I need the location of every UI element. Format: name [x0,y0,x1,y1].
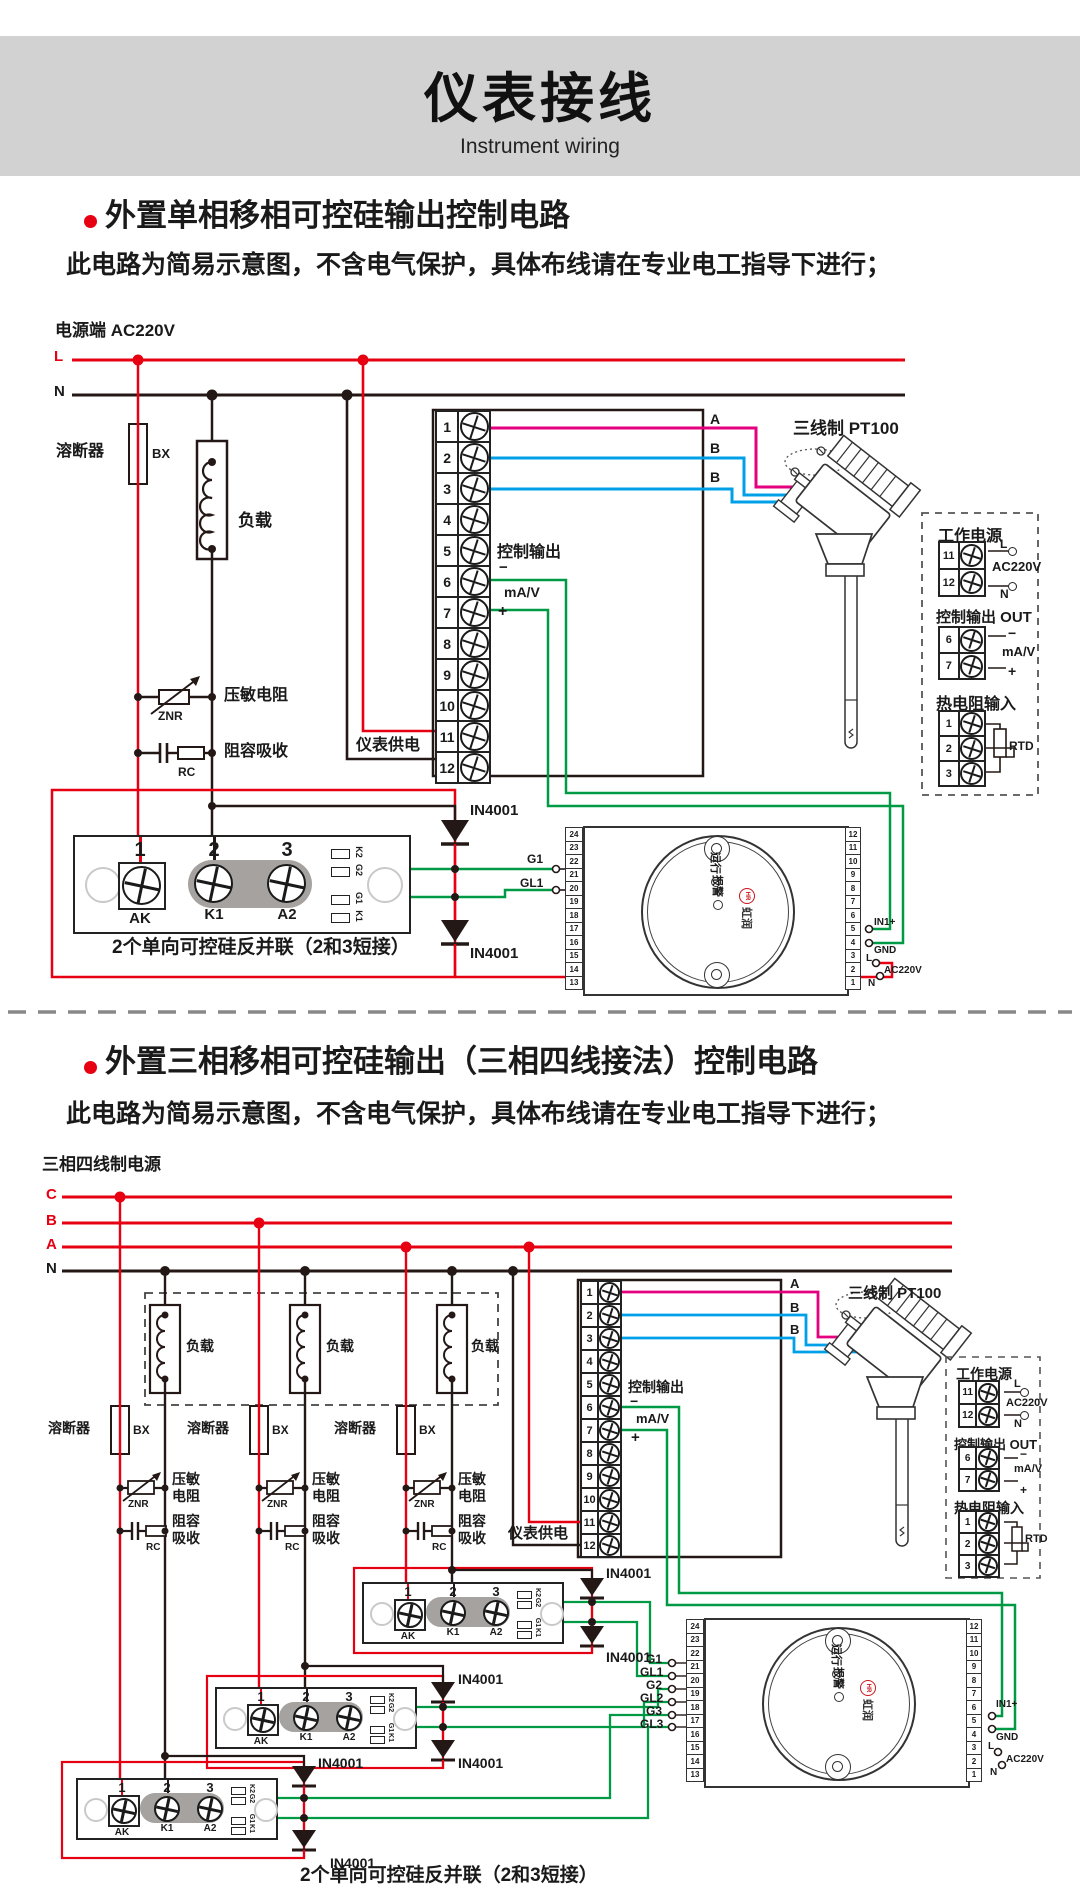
screw-icon [599,1443,620,1464]
diode-label: IN4001 [606,1566,651,1581]
screw-icon [460,412,489,441]
controller-rear: 运行 报警 HR虹润 [583,826,849,996]
screw-icon [460,629,489,658]
varistor-label: 压敏电阻 [224,688,288,705]
panel-unit-label: mA/V [1014,1464,1042,1476]
panel-power-rows: 1112 [958,1382,1000,1428]
snubber-code-label: RC [285,1543,299,1554]
load-label: 负载 [471,1339,499,1354]
screw-icon [599,1305,620,1326]
screw-icon [960,762,983,785]
varistor-label: 电阻 [172,1489,200,1504]
fuse-code-label: BX [272,1424,289,1437]
screw-icon [599,1489,620,1510]
gate-g1-label: G1 [646,1653,662,1666]
screw-icon [194,864,233,903]
wire-b2-label: B [790,1323,799,1337]
screw-icon [267,864,306,903]
panel-voltage-label: AC220V [1006,1398,1048,1410]
section1-title: 外置单相移相可控硅输出控制电路 [105,200,570,233]
instrument-terminal-strip: 123456789101112 [580,1282,622,1555]
mount-hole-icon [370,1602,394,1626]
panel-unit-label: mA/V [1002,645,1035,659]
screw-icon [960,712,983,735]
screw-icon [460,722,489,751]
screw-icon [978,1470,998,1490]
varistor-label: 电阻 [458,1489,486,1504]
scr-module: 1 AK 2 K1 3 A2 K2 G2 G1 K1 [362,1582,564,1644]
mount-hole-icon [367,867,403,903]
gnd-label: GND [874,946,896,957]
snubber-label: 阻容吸收 [224,744,288,761]
gate-gl1-label: GL1 [640,1666,663,1679]
mount-screw-icon [825,1754,851,1780]
load-label: 负载 [326,1339,354,1354]
panel-out-rows: 67 [958,1448,1000,1492]
gate-g2-label: G2 [646,1679,662,1692]
n-label: N [868,979,875,990]
device-left-strip: 242322212019181716151413 [686,1620,704,1782]
screw-icon [599,1535,620,1556]
brand-logo: HR虹润 [860,1680,876,1736]
power-source-label: 三相四线制电源 [42,1156,161,1174]
panel-l-label: L [1000,538,1007,551]
n-label: N [990,1768,997,1779]
voltage-label: AC220V [884,966,922,977]
line-c-label: C [46,1187,57,1203]
in1-label: IN1+ [874,918,895,929]
terminal-dot-icon [1020,1411,1029,1420]
terminal-dot-icon [1008,547,1017,556]
screw-icon [978,1534,998,1554]
varistor-code-label: ZNR [414,1500,435,1511]
screw-icon [599,1397,620,1418]
screw-icon [978,1383,998,1403]
load-label: 负载 [238,512,272,530]
panel-rtd-rows: 123 [958,1512,1000,1574]
screw-icon [960,737,983,760]
wire-a-label: A [790,1277,799,1291]
diode-label: IN4001 [606,1650,651,1665]
scr-module: 1 AK 2 K1 3 A2 K2 G2 G1 K1 [215,1687,417,1749]
screw-icon [960,571,983,594]
screw-icon [960,655,983,678]
panel-minus-label: − [1008,626,1016,641]
scr-caption: 2个单向可控硅反并联（2和3短接） [112,938,410,958]
l-label: L [866,954,872,965]
diode-label: IN4001 [470,803,518,819]
line-n-label: N [54,384,65,400]
fuse-label: 溶断器 [187,1421,229,1436]
gate-g3-label: G3 [646,1705,662,1718]
gate-gl3-label: GL3 [640,1718,663,1731]
gate-pad [331,913,350,923]
screw-icon [460,598,489,627]
scr-caption: 2个单向可控硅反并联（2和3短接） [300,1866,598,1886]
screw-icon [460,753,489,782]
gate-pad [331,849,350,859]
screw-icon [599,1374,620,1395]
diode-label: IN4001 [318,1756,363,1771]
page-subtitle: Instrument wiring [0,135,1080,159]
l-label: L [988,1742,994,1753]
line-n-label: N [46,1261,57,1277]
varistor-label: 压敏 [172,1472,200,1487]
ctrl-unit-label: mA/V [504,585,540,600]
screw-icon [599,1328,620,1349]
ctrl-unit-label: mA/V [636,1412,669,1426]
section1-note: 此电路为简易示意图，不含电气保护，具体布线请在专业电工指导下进行； [66,252,891,279]
bullet-icon [84,215,97,228]
screw-icon [460,567,489,596]
diode-label: IN4001 [458,1672,503,1687]
panel-rtd-label: RTD [1009,740,1034,753]
alarm-indicator: 报警 [711,875,725,921]
varistor-code-label: ZNR [267,1500,288,1511]
panel-n-label: N [1000,588,1009,601]
alarm-led-icon [713,900,723,910]
line-l-label: L [54,349,63,365]
controller-rear: 运行 报警 HR虹润 [704,1618,970,1788]
line-a-label: A [46,1237,57,1253]
fuse-label: 溶断器 [334,1421,376,1436]
screw-icon [599,1420,620,1441]
diode-label: IN4001 [458,1756,503,1771]
screw-icon [960,629,983,652]
terminal-dot-icon [1020,1388,1029,1397]
scr-module: 1 AK 2 K1 3 A2 K2 G2 G1 K1 [73,835,411,934]
snubber-code-label: RC [178,766,195,779]
sensor-label: 三线制 PT100 [848,1286,941,1302]
fuse-label: 溶断器 [56,444,104,461]
mount-screw-icon [704,962,730,988]
snubber-code-label: RC [146,1543,160,1554]
snubber-label: 阻容 [312,1514,340,1529]
screw-icon [978,1448,998,1468]
diode-label: IN4001 [470,946,518,962]
load-label: 负载 [186,1339,214,1354]
screw-icon [599,1282,620,1303]
screw-icon [978,1406,998,1426]
screw-icon [460,660,489,689]
panel-power-rows: 1112 [938,543,986,597]
varistor-label: 压敏 [312,1472,340,1487]
section2-note: 此电路为简易示意图，不含电气保护，具体布线请在专业电工指导下进行； [66,1101,891,1128]
brand-logo: HR虹润 [739,888,755,944]
screw-icon [460,691,489,720]
terminal-dot-icon [1008,582,1017,591]
minus-label: − [499,560,508,576]
varistor-label: 压敏 [458,1472,486,1487]
section2-title: 外置三相移相可控硅输出（三相四线接法）控制电路 [105,1046,818,1079]
gnd-label: GND [996,1733,1018,1744]
wire-a-label: A [710,412,720,427]
bullet-icon [84,1061,97,1074]
screw-icon [460,505,489,534]
meter-supply-label: 仪表供电 [508,1526,568,1542]
meter-supply-label: 仪表供电 [356,738,420,755]
snubber-label: 吸收 [458,1531,486,1546]
voltage-label: AC220V [1006,1755,1044,1766]
fuse-code-label: BX [419,1424,436,1437]
screw-icon [978,1556,998,1576]
gate-pad [331,867,350,877]
gate-gl2-label: GL2 [640,1692,663,1705]
panel-rtd-rows: 123 [938,712,986,784]
gate-g1-label: G1 [527,853,543,866]
fuse-code-label: BX [133,1424,150,1437]
alarm-indicator: 报警 [832,1667,846,1713]
screw-icon [599,1466,620,1487]
snubber-label: 阻容 [172,1514,200,1529]
panel-plus-label: + [1020,1484,1027,1497]
varistor-code-label: ZNR [128,1500,149,1511]
panel-voltage-label: AC220V [992,560,1041,574]
fuse-label: 溶断器 [48,1421,90,1436]
screw-icon [122,866,161,905]
plus-label: + [631,1430,640,1446]
scr-module: 1 AK 2 K1 3 A2 K2 G2 G1 K1 [76,1778,278,1840]
mount-hole-icon [85,867,121,903]
page-title: 仪表接线 [0,54,1080,133]
instrument-terminal-strip: 123456789101112 [435,412,491,774]
in1-label: IN1+ [996,1700,1017,1711]
panel-out-rows: 67 [938,628,986,680]
screw-icon [599,1351,620,1372]
minus-label: − [630,1394,638,1409]
snubber-label: 阻容 [458,1514,486,1529]
page-header: 仪表接线 Instrument wiring [0,36,1080,176]
mount-hole-icon [540,1602,564,1626]
screw-icon [978,1512,998,1532]
panel-minus-label: − [1020,1448,1027,1461]
fuse-code-label: BX [152,447,170,461]
wire-b-label: B [790,1301,799,1315]
line-b-label: B [46,1213,57,1229]
panel-rtd-label: RTD [1025,1534,1048,1546]
plus-label: + [498,604,507,621]
panel-out-title: 控制输出 OUT [936,606,1032,627]
panel-l-label: L [1014,1379,1021,1391]
sensor-label: 三线制 PT100 [793,420,899,438]
device-right-strip: 121110987654321 [966,1620,982,1782]
wire-b-label: B [710,441,720,456]
power-source-label: 电源端 AC220V [55,322,175,340]
screw-icon [960,544,983,567]
panel-n-label: N [1014,1419,1022,1431]
snubber-label: 吸收 [172,1531,200,1546]
snubber-code-label: RC [432,1543,446,1554]
screw-icon [599,1512,620,1533]
page: 仪表接线 Instrument wiring 外置单相移相可控硅输出控制电路 此… [0,0,1080,1904]
gate-pad [331,895,350,905]
screw-icon [460,474,489,503]
varistor-label: 电阻 [312,1489,340,1504]
screw-icon [460,443,489,472]
varistor-code-label: ZNR [158,710,183,723]
device-right-strip: 121110987654321 [845,828,861,990]
screw-icon [460,536,489,565]
wire-b2-label: B [710,470,720,485]
gate-gl1-label: GL1 [520,877,543,890]
panel-plus-label: + [1008,664,1016,679]
snubber-label: 吸收 [312,1531,340,1546]
device-left-strip: 242322212019181716151413 [565,828,583,990]
